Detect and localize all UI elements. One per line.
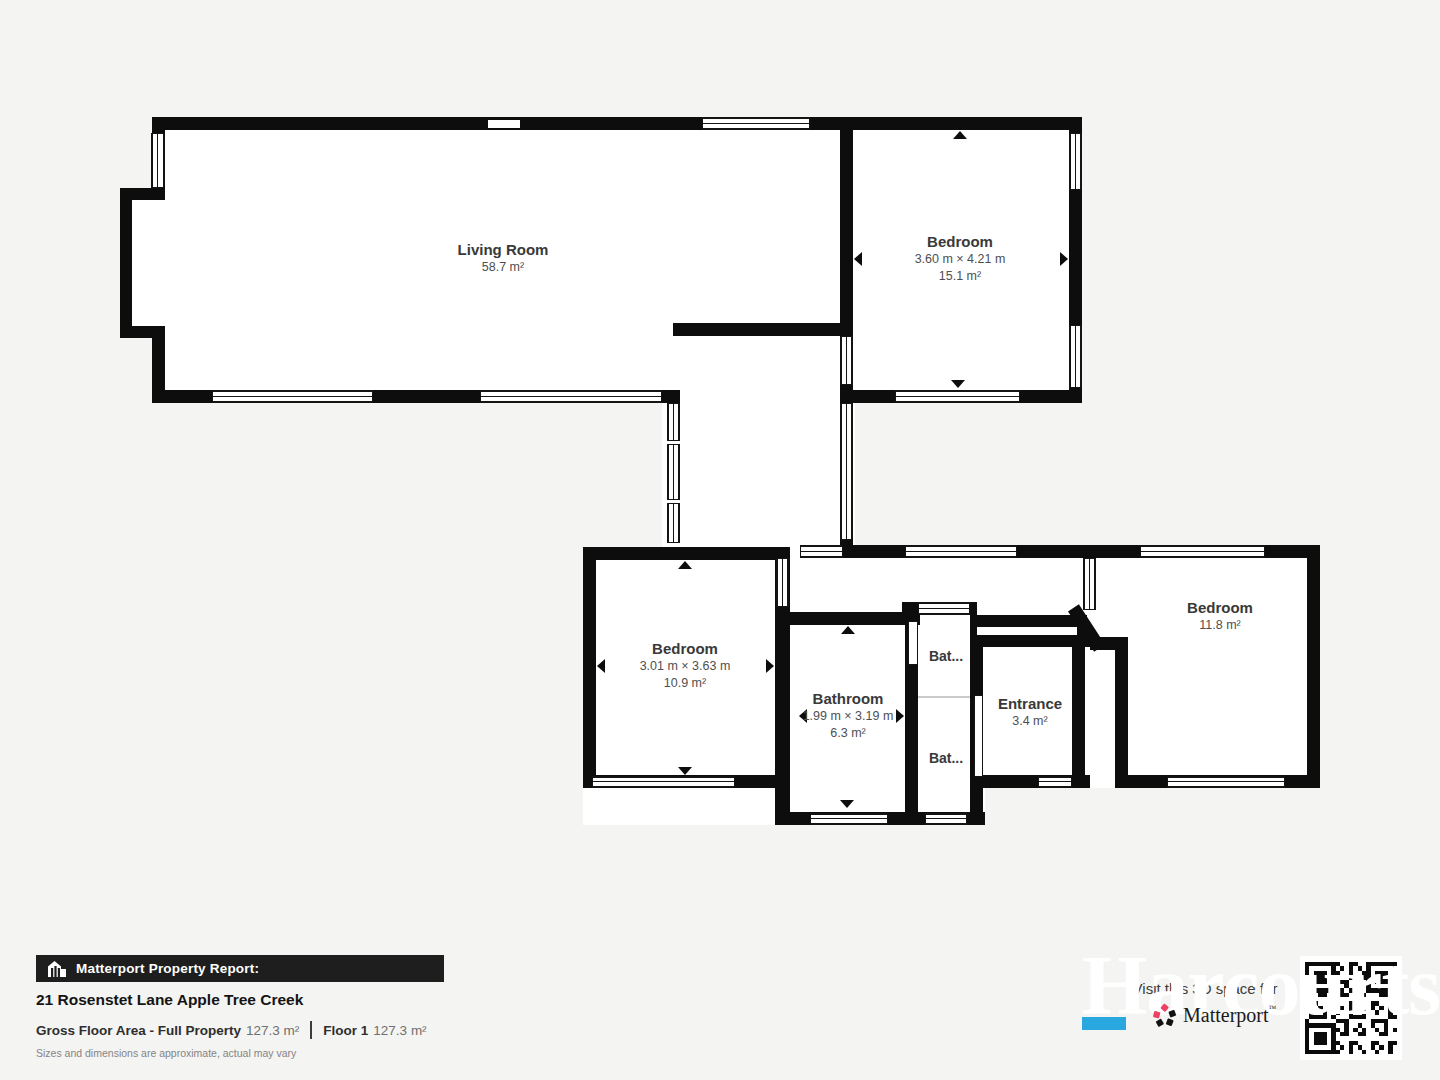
dimension-arrow-down-icon	[678, 767, 692, 775]
matterport-wordmark: Matterport™	[1183, 1004, 1276, 1027]
room-label-bedroom-middle: Bedroom 3.01 m × 3.63 m 10.9 m²	[640, 639, 731, 692]
dimension-arrow-left-icon	[854, 252, 862, 266]
matterport-logo: Matterport™	[1152, 1003, 1276, 1028]
wall	[673, 323, 852, 336]
window	[592, 776, 735, 788]
room-dimensions: 3.60 m × 4.21 m	[915, 251, 1006, 268]
window	[1140, 545, 1265, 558]
room-area: 3.4 m²	[998, 713, 1062, 730]
dimension-arrow-left-icon	[597, 659, 605, 673]
window	[918, 602, 970, 615]
dimension-arrow-down-icon	[840, 800, 854, 808]
floor-area-summary: Gross Floor Area - Full Property 127.3 m…	[36, 1021, 427, 1039]
window	[800, 545, 843, 558]
wall	[583, 547, 790, 560]
room-area: 6.3 m²	[803, 725, 894, 742]
room-divider-line	[918, 696, 970, 698]
window	[667, 403, 680, 441]
room-dimensions: 3.01 m × 3.63 m	[640, 658, 731, 675]
trademark-symbol: ™	[1269, 1004, 1277, 1013]
floor-value: 127.3 m²	[373, 1023, 426, 1038]
room-label-entrance: Entrance 3.4 m²	[998, 694, 1062, 730]
window	[810, 813, 888, 825]
dimension-arrow-up-icon	[841, 626, 855, 634]
dimension-arrow-up-icon	[678, 561, 692, 569]
dimension-arrow-down-icon	[951, 380, 965, 388]
floor-hallway	[662, 333, 855, 557]
wall	[152, 117, 1082, 130]
window	[895, 390, 1020, 403]
gross-floor-area-value: 127.3 m²	[246, 1023, 299, 1038]
wall	[970, 615, 1087, 627]
dimension-arrow-right-icon	[896, 709, 904, 723]
room-area: 10.9 m²	[640, 675, 731, 692]
window	[667, 503, 680, 543]
door-opening	[908, 621, 918, 665]
wall	[970, 627, 977, 635]
room-name: Bathroom	[803, 689, 894, 708]
gross-floor-area-label: Gross Floor Area - Full Property	[36, 1023, 241, 1038]
dimension-arrow-right-icon	[766, 659, 774, 673]
wall	[120, 188, 132, 338]
window	[840, 336, 853, 385]
window	[667, 444, 680, 500]
room-area: 58.7 m²	[458, 259, 549, 276]
window	[1083, 558, 1096, 610]
room-area: 11.8 m²	[1187, 617, 1253, 634]
wall	[970, 775, 1090, 788]
room-name: Bedroom	[915, 232, 1006, 251]
wall	[970, 635, 1090, 647]
wall	[583, 547, 596, 788]
window	[925, 813, 967, 825]
window	[212, 390, 373, 403]
window	[480, 390, 662, 403]
disclaimer-text: Sizes and dimensions are approximate, ac…	[36, 1047, 296, 1059]
wall	[1115, 650, 1128, 788]
dimension-arrow-up-icon	[953, 131, 967, 139]
room-label-bedroom-right: Bedroom 11.8 m²	[1187, 598, 1253, 634]
room-name: Bedroom	[640, 639, 731, 658]
divider	[310, 1021, 312, 1039]
property-address: 21 Rosenstet Lane Apple Tree Creek	[36, 991, 303, 1009]
window	[840, 403, 853, 540]
room-name: Bat...	[929, 647, 963, 666]
room-label-bathroom-small-bottom: Bat...	[929, 749, 963, 768]
room-label-bathroom-small-top: Bat...	[929, 647, 963, 666]
window	[1167, 776, 1285, 788]
window	[1069, 133, 1082, 190]
matterport-home-icon	[46, 960, 68, 977]
room-label-bathroom: Bathroom 1.99 m × 3.19 m 6.3 m²	[803, 689, 894, 742]
room-name: Entrance	[998, 694, 1062, 713]
window	[702, 117, 810, 130]
door-opening	[977, 627, 1077, 635]
wall-niche	[488, 120, 520, 128]
window	[776, 558, 789, 607]
wall	[1307, 545, 1320, 788]
wall	[785, 612, 920, 625]
window	[1069, 325, 1082, 388]
room-label-living-room: Living Room 58.7 m²	[458, 240, 549, 276]
window	[151, 133, 165, 188]
room-name: Bedroom	[1187, 598, 1253, 617]
room-name: Bat...	[929, 749, 963, 768]
floorplan-canvas: Living Room 58.7 m² Bedroom 3.60 m × 4.2…	[0, 0, 1440, 1080]
window	[1038, 776, 1072, 788]
room-label-bedroom-top-right: Bedroom 3.60 m × 4.21 m 15.1 m²	[915, 232, 1006, 285]
dimension-arrow-right-icon	[1060, 252, 1068, 266]
door-opening	[974, 695, 983, 777]
report-banner-title: Matterport Property Report:	[76, 961, 259, 976]
room-area: 15.1 m²	[915, 268, 1006, 285]
wall	[1090, 637, 1128, 650]
harcourts-blue-bar	[1082, 1017, 1126, 1030]
wall	[1072, 647, 1085, 788]
room-dimensions: 1.99 m × 3.19 m	[803, 708, 894, 725]
matterport-pinwheel-icon	[1152, 1003, 1177, 1028]
room-name: Living Room	[458, 240, 549, 259]
report-banner: Matterport Property Report:	[36, 955, 444, 982]
window	[905, 545, 1017, 558]
floor-label: Floor 1	[323, 1023, 368, 1038]
